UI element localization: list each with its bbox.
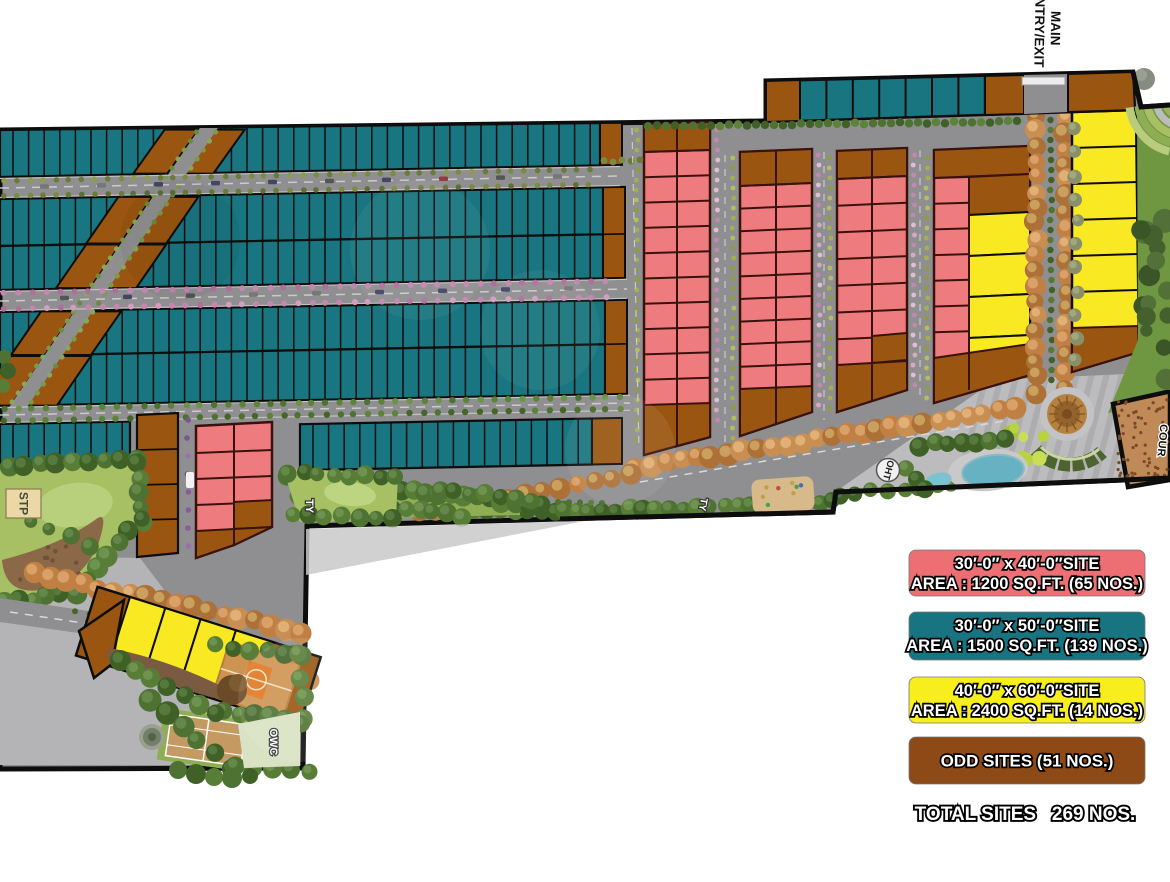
svg-text:TOTAL SITES 269 NOS.: TOTAL SITES 269 NOS.	[915, 804, 1136, 825]
svg-text:MAIN: MAIN	[1048, 11, 1064, 46]
svg-text:AREA : 2400 SQ.FT. (14 NOS.): AREA : 2400 SQ.FT. (14 NOS.)	[911, 702, 1143, 720]
svg-text:TY: TY	[303, 499, 315, 514]
svg-text:ODD SITES (51 NOS.): ODD SITES (51 NOS.)	[941, 752, 1114, 771]
svg-text:AREA : 1500 SQ.FT. (139 NOS.): AREA : 1500 SQ.FT. (139 NOS.)	[906, 637, 1147, 655]
svg-text:40′-0″ x 60′-0″SITE: 40′-0″ x 60′-0″SITE	[955, 682, 1100, 700]
svg-text:AREA : 1200 SQ.FT. (65 NOS.): AREA : 1200 SQ.FT. (65 NOS.)	[911, 575, 1143, 593]
svg-text:30′-0″ x 40′-0″SITE: 30′-0″ x 40′-0″SITE	[955, 555, 1100, 573]
svg-text:ENTRY/EXIT: ENTRY/EXIT	[1031, 0, 1047, 68]
svg-text:TY: TY	[696, 497, 709, 512]
svg-text:30′-0″ x 50′-0″SITE: 30′-0″ x 50′-0″SITE	[955, 617, 1100, 635]
svg-text:STP: STP	[17, 492, 31, 515]
